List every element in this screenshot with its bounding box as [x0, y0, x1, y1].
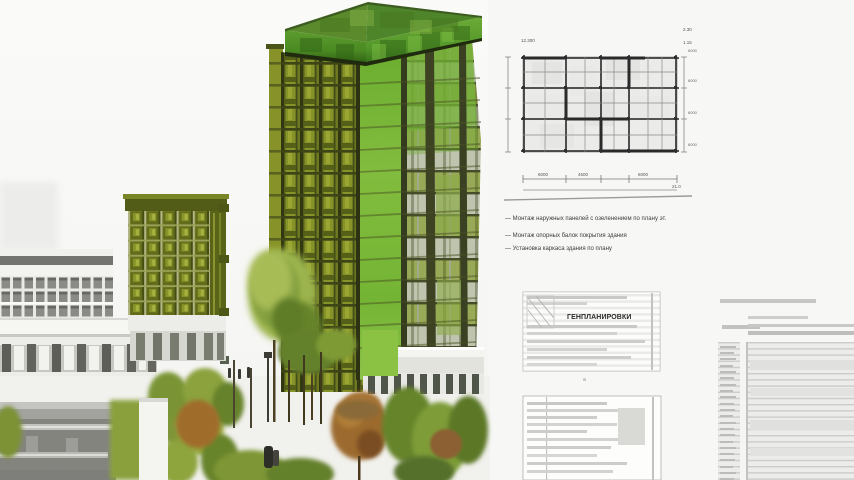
- svg-text:2.30: 2.30: [683, 27, 692, 32]
- svg-text:6000: 6000: [538, 172, 549, 177]
- svg-text:— Монтаж наружных панелей с о: — Монтаж наружных панелей с озеленением …: [505, 215, 667, 222]
- svg-text:ГЕНПЛАНИРОВКИ: ГЕНПЛАНИРОВКИ: [567, 314, 631, 321]
- svg-text:6000: 6000: [688, 110, 698, 115]
- svg-text:6000: 6000: [688, 48, 698, 53]
- svg-text:21.0: 21.0: [672, 184, 681, 189]
- svg-text:1.15: 1.15: [683, 40, 692, 45]
- svg-text:6000: 6000: [688, 142, 698, 147]
- svg-text:а: а: [583, 377, 586, 383]
- svg-text:4500: 4500: [578, 172, 589, 177]
- svg-text:— Установка каркаса здания по: — Установка каркаса здания по плану: [505, 246, 612, 252]
- svg-text:12.300: 12.300: [521, 38, 535, 43]
- svg-text:— Монтаж опорных балок покрыт: — Монтаж опорных балок покрытия здания: [505, 233, 627, 239]
- svg-text:6000: 6000: [638, 172, 649, 177]
- svg-text:6000: 6000: [688, 78, 698, 83]
